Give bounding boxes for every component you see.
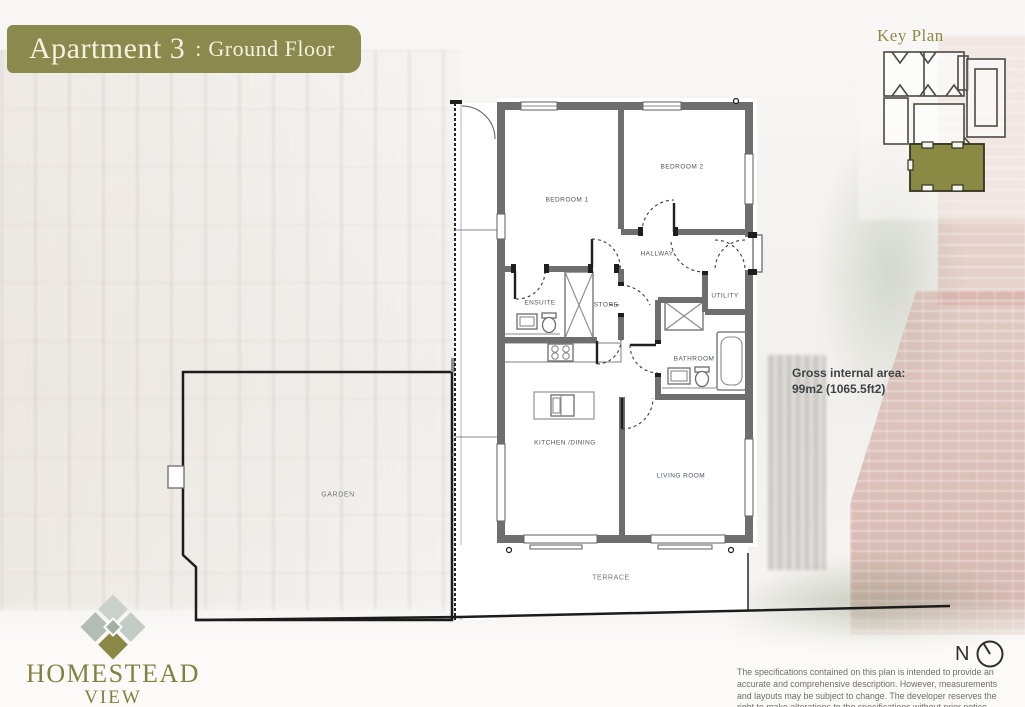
brand-name: HOMESTEAD [22,659,204,689]
plan-title-banner: Apartment 3 : Ground Floor [7,25,361,73]
side-passage [450,100,497,620]
disclaimer-line: and layouts may be subject to change. Th… [737,691,1019,703]
disclaimer-line: accurate and comprehensive description. … [737,679,1019,691]
north-label: N [955,643,969,666]
north-icon [974,638,1006,670]
room-label-bedroom-1: BEDROOM 1 [545,197,588,204]
disclaimer-line: The specifications contained on this pla… [737,667,1019,679]
gross-internal-area: Gross internal area: 99m2 (1065.5ft2) [792,365,905,397]
area-line-2: 99m2 (1065.5ft2) [792,381,905,397]
room-label-utility: UTILITY [711,293,738,300]
title-separator: : [195,36,201,62]
north-indicator: N [955,638,1006,670]
area-line-1: Gross internal area: [792,365,905,381]
key-plan-map [862,42,1025,217]
homestead-diamond-icon [68,592,158,662]
floor-title: Ground Floor [208,36,334,62]
brochure-page: Apartment 3 : Ground Floor Key Plan [0,0,1025,707]
floor-plan-drawing [165,85,965,630]
disclaimer-line: right to make alterations to the specifi… [737,702,1019,707]
room-label-bedroom-2: BEDROOM 2 [660,164,703,171]
room-label-store: STORE [594,302,619,309]
room-label-ensuite: ENSUITE [524,300,555,307]
key-plan-heading: Key Plan [877,26,944,46]
room-label-living-room: LIVING ROOM [657,473,705,480]
room-label-kitchen-dining: KITCHEN /DINING [534,440,596,447]
room-label-terrace: TERRACE [592,575,630,582]
garden-outline [168,358,460,620]
disclaimer-text: The specifications contained on this pla… [737,667,1019,707]
room-label-garden: GARDEN [321,492,355,499]
room-label-hallway: HALLWAY [640,251,673,258]
room-label-bathroom: BATHROOM [674,356,715,363]
brand-subname: VIEW [22,687,204,707]
apartment-title: Apartment 3 [29,32,185,66]
